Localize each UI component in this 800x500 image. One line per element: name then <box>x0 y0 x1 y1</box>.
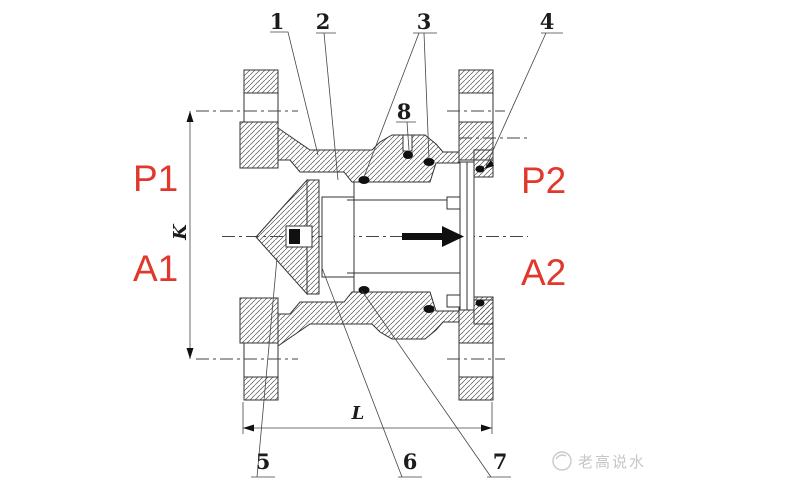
retainer-tab-top <box>447 197 460 209</box>
dim-k-arrow-top <box>187 111 194 122</box>
callout-7: 7 <box>493 449 508 474</box>
seal-3-left-oring <box>359 176 370 184</box>
top-seal-groove <box>403 135 412 151</box>
flow-arrow-right-icon <box>402 226 464 247</box>
flange-right-top-tip <box>459 70 493 93</box>
callout-8: 8 <box>397 99 412 124</box>
flange-right-top-bolt-hole <box>459 93 493 122</box>
callout-4: 4 <box>540 9 555 34</box>
flange-left-bottom-tip <box>244 377 278 400</box>
water-logo-icon-detail <box>556 455 566 459</box>
dimension-l: L <box>243 402 492 434</box>
leader-4 <box>486 33 563 166</box>
body-top-wall <box>278 128 459 182</box>
port-label-p1: P1 <box>133 158 178 199</box>
disc-stem-bolt <box>289 229 300 244</box>
port-label-a1: A1 <box>133 248 178 289</box>
dim-k-label: K <box>170 223 191 241</box>
flange-left-top-bolt-hole <box>244 93 278 122</box>
retainer-tab-bottom <box>447 295 460 307</box>
callout-5: 5 <box>256 449 271 474</box>
dim-l-arrow-left <box>243 425 254 432</box>
flange-left-top-tip <box>244 70 278 93</box>
seal-4-bottom-oring <box>476 300 485 307</box>
dim-l-arrow-right <box>481 425 492 432</box>
seal-3-right-oring <box>424 158 435 166</box>
valve-cross-section-canvas: K L 1 2 3 4 8 5 6 7 P1 A1 P2 A2 老高说水 <box>0 0 800 500</box>
flange-left-upper-hub <box>240 122 278 168</box>
seal-8-oring <box>403 151 413 159</box>
callout-6: 6 <box>403 449 418 474</box>
flange-left-bottom-bolt-hole <box>244 343 278 377</box>
watermark-text: 老高说水 <box>578 453 646 471</box>
callout-3: 3 <box>417 9 432 34</box>
flange-left-lower-hub <box>240 298 278 343</box>
port-label-a2: A2 <box>521 252 566 293</box>
watermark: 老高说水 <box>553 452 646 471</box>
callout-1: 1 <box>270 9 285 34</box>
flange-right-bottom-bolt-hole <box>459 343 493 377</box>
dim-k-arrow-bottom <box>187 348 194 359</box>
seal-7-oring <box>359 286 370 294</box>
port-label-p2: P2 <box>521 160 566 201</box>
seal-bottom-right-oring <box>424 305 435 313</box>
seal-4-top-oring <box>476 166 485 173</box>
flange-right-bottom-tip <box>459 377 493 400</box>
callout-2: 2 <box>316 9 331 34</box>
valve-disc-assembly <box>256 180 319 294</box>
valve-drawing-page: K L 1 2 3 4 8 5 6 7 P1 A1 P2 A2 老高说水 <box>0 0 800 500</box>
dim-l-label: L <box>351 403 365 424</box>
dimension-k: K <box>170 111 194 359</box>
seat-ring <box>322 197 354 277</box>
